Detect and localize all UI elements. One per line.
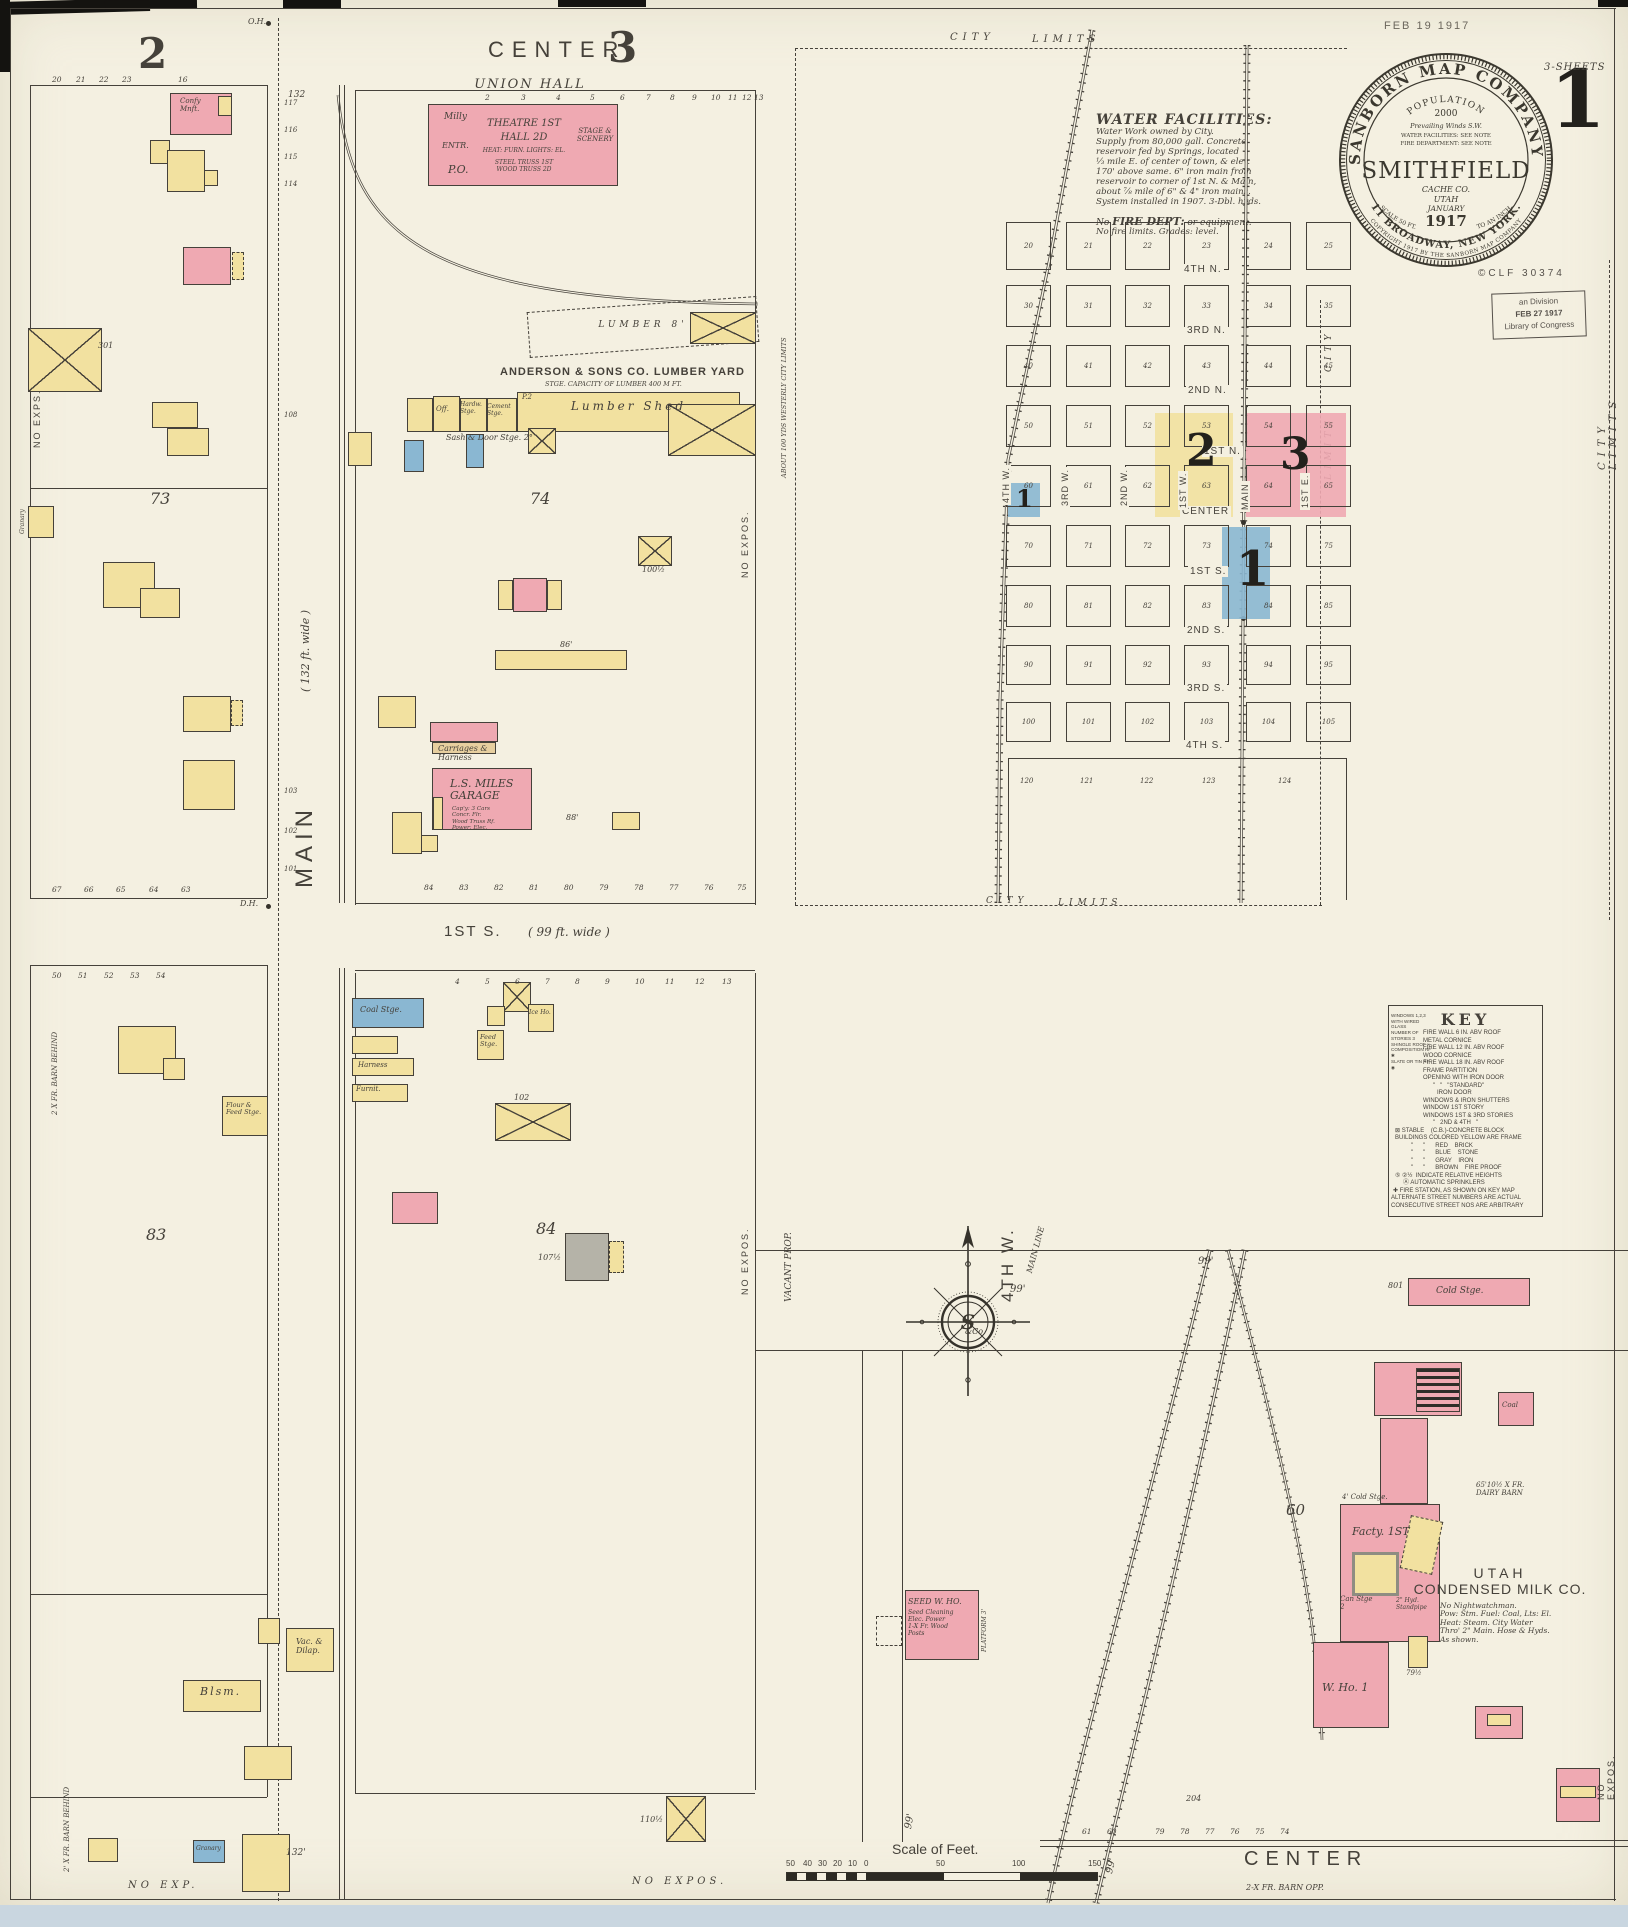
map-label: 99' [1198, 1256, 1213, 1267]
lot-number: 16 [178, 76, 188, 84]
key-legend-mini-line: NUMBER OF STORIES 3 [1391, 1030, 1433, 1041]
map-line [267, 965, 268, 1797]
map-label: 801 [1388, 1282, 1403, 1291]
map-label: 114 [284, 181, 297, 189]
map-label: LIMITS [1058, 898, 1122, 908]
map-line [10, 8, 11, 1899]
map-label: 108 [284, 412, 297, 420]
building [1352, 1552, 1399, 1596]
keymap-block: 103 [1184, 702, 1229, 742]
map-label: 204 [1186, 1795, 1201, 1804]
building [392, 812, 422, 854]
keymap-street-label: 4TH W. [1001, 465, 1011, 505]
scale-bar-number: 0 [864, 1860, 868, 1869]
lot-number: 54 [156, 972, 166, 980]
lot-number: 9 [692, 94, 697, 102]
seal-water-note: WATER FACILITIES: SEE NOTE [1401, 133, 1491, 139]
lot-number: 77 [669, 884, 679, 892]
torn-paper-edge [558, 0, 646, 7]
map-label: ABOUT 100 YDS WESTERLY CITY LIMITS [781, 337, 788, 478]
map-label: O.H. [248, 18, 266, 27]
map-line [344, 968, 345, 1899]
keymap-street-label: 2ND W. [1119, 467, 1129, 508]
lot-number: 76 [1230, 1828, 1240, 1836]
building [258, 1618, 280, 1644]
keymap-block: 75 [1306, 525, 1351, 567]
keymap-block: 80 [1006, 585, 1051, 627]
lot-number: 78 [634, 884, 644, 892]
map-label: NO EXPOS. [632, 1876, 727, 1887]
map-label: 73 [150, 490, 170, 508]
map-label: D.H. [240, 900, 258, 909]
map-line [339, 968, 340, 1899]
keymap-block: 40 [1006, 345, 1051, 387]
scale-bar-cell [1021, 1873, 1097, 1880]
key-legend-line: ⑤ ②½ INDICATE RELATIVE HEIGHTS [1395, 1173, 1502, 1179]
building [547, 580, 562, 610]
lot-number: 82 [494, 884, 504, 892]
map-line [30, 898, 267, 899]
lot-number: 7 [646, 94, 651, 102]
building [433, 396, 460, 432]
lot-number: 78 [1180, 1828, 1190, 1836]
map-label: THEATRE 1ST [482, 118, 566, 129]
keymap-block-number: 120 [1020, 778, 1033, 786]
keymap-block: 105 [1306, 702, 1351, 742]
keymap-block: 22 [1125, 222, 1170, 270]
keymap-block: 104 [1246, 702, 1291, 742]
keymap-block-number: 124 [1278, 778, 1291, 786]
lot-number: 8 [670, 94, 675, 102]
lot-number: 12 [695, 978, 705, 986]
map-label: NO EXP. [128, 1880, 198, 1891]
lot-number: 8 [575, 978, 580, 986]
scale-bar-cell [807, 1873, 817, 1880]
keymap-block: 23 [1184, 222, 1229, 270]
map-label: Seed Cleaning Elec. Power 1-X Fr. Wood P… [908, 1610, 953, 1638]
lot-number: 3 [521, 94, 526, 102]
key-legend-mini-line: COMPOSITION RF ✱ [1391, 1047, 1433, 1058]
keymap-block: 55 [1306, 405, 1351, 447]
scale-bar-cell [787, 1873, 797, 1880]
map-label: Cement Stge. [487, 404, 511, 417]
building [244, 1746, 292, 1780]
map-line-dashed [795, 48, 796, 905]
map-label: No Nightwatchman. Pow: Stm. Fuel: Coal, … [1440, 1602, 1551, 1644]
map-label: LUMBER 8' [528, 320, 758, 330]
key-legend-line: FIRE WALL 6 IN. ABV ROOF [1423, 1030, 1501, 1036]
map-line [755, 1250, 1628, 1251]
map-label: ( 132 ft. wide ) [300, 610, 312, 692]
map-line [30, 965, 267, 966]
lot-number: 10 [711, 94, 721, 102]
lot-number: 21 [76, 76, 86, 84]
map-label: CENTER [488, 38, 626, 63]
scale-bar-cell [827, 1873, 837, 1880]
water-notes-title: WATER FACILITIES: [1096, 112, 1316, 128]
building [666, 1796, 706, 1842]
lot-number: 79 [1155, 1828, 1165, 1836]
key-legend-line: " " RED BRICK [1411, 1143, 1473, 1149]
building [565, 1233, 609, 1281]
map-label: NO EXPOS. [740, 510, 750, 578]
building [152, 402, 198, 428]
lot-number: 10 [635, 978, 645, 986]
map-label: FEB 19 1917 [1384, 20, 1470, 32]
scale-bar-cell [837, 1873, 847, 1880]
map-label: Sash & Door Stge. 2° [446, 434, 533, 443]
keymap-block: 91 [1066, 645, 1111, 685]
keymap-street-label: 4TH N. [1182, 264, 1224, 275]
map-label: STGE. CAPACITY OF LUMBER 400 M FT. [545, 381, 682, 388]
lot-number: 22 [99, 76, 109, 84]
map-line [755, 90, 756, 905]
map-label: 103 [284, 788, 297, 796]
key-legend-line: Ⓐ AUTOMATIC SPRINKLERS [1403, 1180, 1485, 1186]
scale-bar-cell [847, 1873, 857, 1880]
torn-paper-edge [1598, 0, 1628, 7]
map-label: Blsm. [200, 1686, 241, 1698]
map-label: 3-SHEETS [1544, 62, 1605, 73]
lot-number: 81 [529, 884, 539, 892]
keymap-block: 83 [1184, 585, 1229, 627]
map-line [10, 1899, 1616, 1900]
map-label: 2 X FR. BARN BEHIND [52, 1032, 60, 1115]
map-label: CITY [950, 32, 995, 43]
lot-number: 51 [78, 972, 88, 980]
keymap-block: 21 [1066, 222, 1111, 270]
keymap-block: 20 [1006, 222, 1051, 270]
map-label: Flour & Feed Stge. [226, 1102, 261, 1117]
keymap-block: 61 [1066, 465, 1111, 507]
map-label: 2' X FR. BARN BEHIND [64, 1787, 72, 1872]
building [183, 696, 231, 732]
lot-number: 74 [1280, 1828, 1290, 1836]
map-label: 99' [1104, 1857, 1119, 1875]
map-label: Cold Stge. [1436, 1286, 1484, 1296]
building [495, 1103, 571, 1141]
building [167, 150, 205, 192]
map-line [344, 85, 345, 903]
map-line [30, 488, 267, 489]
map-line-dashed [1609, 260, 1610, 920]
map-label: 301 [98, 342, 113, 351]
keymap-block: 32 [1125, 285, 1170, 327]
map-line [1040, 1840, 1628, 1841]
building [163, 1058, 185, 1080]
map-label: Facty. 1ST [1352, 1526, 1410, 1538]
keymap-block: 73 [1184, 525, 1229, 567]
water-facilities-notes: WATER FACILITIES: Water Work owned by Ci… [1096, 112, 1316, 238]
map-label: 2-X FR. BARN OPP. [1246, 1884, 1324, 1893]
building [232, 252, 244, 280]
key-legend-line: " " GRAY IRON [1411, 1158, 1473, 1164]
keymap-block: 93 [1184, 645, 1229, 685]
map-label: Harness [358, 1062, 387, 1070]
keymap-block: 100 [1006, 702, 1051, 742]
building [487, 1006, 505, 1026]
map-line [755, 973, 756, 1790]
map-label: UNION HALL [470, 78, 590, 93]
lot-number: 13 [722, 978, 732, 986]
scale-bar-number: 10 [848, 1860, 857, 1869]
lot-number: 6 [620, 94, 625, 102]
keymap-block: 82 [1125, 585, 1170, 627]
building [433, 797, 443, 830]
map-label: 107½ [538, 1254, 561, 1263]
lot-number: 77 [1205, 1828, 1215, 1836]
map-line [355, 970, 755, 971]
building [378, 696, 416, 728]
library-of-congress-stamp: an Division FEB 27 1917 Library of Congr… [1491, 290, 1587, 339]
keymap-block: 81 [1066, 585, 1111, 627]
map-label: L.S. MILES GARAGE [450, 778, 513, 803]
lot-number: 23 [122, 76, 132, 84]
lot-number: 5 [590, 94, 595, 102]
keymap-street-label: 3RD W. [1060, 467, 1070, 508]
lot-number: 11 [728, 94, 738, 102]
seal-population: 2000 [1435, 109, 1458, 119]
keymap-block: 94 [1246, 645, 1291, 685]
scale-bar-number: 50 [786, 1860, 795, 1869]
keymap-block: 95 [1306, 645, 1351, 685]
keymap-block: 44 [1246, 345, 1291, 387]
building [421, 835, 438, 852]
seal-county: CACHE CO. [1422, 185, 1470, 194]
map-label: 4' Cold Stge. [1342, 1494, 1388, 1502]
map-label: CENTER [1244, 1848, 1368, 1870]
map-label: 2" Hyd. Standpipe [1396, 1598, 1427, 1611]
lot-number: 66 [84, 886, 94, 894]
lot-number: 67 [52, 886, 62, 894]
building [430, 722, 498, 742]
building [183, 760, 235, 810]
sanborn-seal: SANBORN MAP COMPANY. POPULATION 2000 Pre… [1336, 50, 1556, 270]
scale-bar-number: 100 [1012, 1860, 1025, 1869]
map-line [30, 85, 31, 898]
water-notes-body: Water Work owned by City.Supply from 80,… [1096, 128, 1316, 208]
lot-number: 76 [704, 884, 714, 892]
keymap-block: 51 [1066, 405, 1111, 447]
lot-number: 6 [515, 978, 520, 986]
map-line [339, 85, 340, 903]
map-label: STAGE & SCENERY [574, 128, 616, 144]
key-legend-line: CONSECUTIVE STREET NOS ARE ARBITRARY [1391, 1203, 1523, 1209]
map-label: 101 [284, 866, 297, 874]
keymap-block: 50 [1006, 405, 1051, 447]
key-legend-line: FIRE WALL 12 IN. ABV ROOF [1423, 1045, 1504, 1051]
keymap-block-number: 123 [1202, 778, 1215, 786]
map-label: CONDENSED MILK CO. [1410, 1582, 1590, 1598]
building [1560, 1786, 1596, 1798]
map-label: LIMITS [1032, 34, 1100, 45]
map-label: Feed Stge. [480, 1034, 497, 1049]
map-dot [266, 21, 271, 26]
lot-number: 83 [459, 884, 469, 892]
building [495, 650, 627, 670]
map-line [902, 1350, 903, 1842]
lot-number: 79 [599, 884, 609, 892]
key-legend-line: IRON DOOR [1437, 1090, 1472, 1096]
lot-number: 75 [737, 884, 747, 892]
map-label: ©CLF 30374 [1478, 268, 1565, 279]
building [638, 536, 672, 566]
keymap-block: 30 [1006, 285, 1051, 327]
keymap-block: 42 [1125, 345, 1170, 387]
key-legend-line: " " BROWN FIRE PROOF [1411, 1165, 1502, 1171]
lot-number: 2 [485, 94, 490, 102]
keymap-block: 41 [1066, 345, 1111, 387]
key-legend-line: WINDOWS & IRON SHUTTERS [1423, 1098, 1510, 1104]
building [513, 578, 547, 612]
key-legend-line: ALTERNATE STREET NUMBERS ARE ACTUAL [1391, 1195, 1521, 1201]
map-line [1008, 758, 1346, 759]
map-label: 60 [1286, 1502, 1305, 1519]
building [1487, 1714, 1511, 1726]
scale-bar-title: Scale of Feet. [892, 1842, 978, 1858]
map-label: Hardw. Stge. [460, 402, 482, 415]
map-label: 84 [536, 1220, 556, 1238]
keymap-block: 72 [1125, 525, 1170, 567]
key-legend-line: WINDOW 1ST STORY [1423, 1105, 1484, 1111]
keymap-block: 45 [1306, 345, 1351, 387]
map-label: 99' [903, 1813, 917, 1830]
building [1408, 1636, 1428, 1668]
map-line [755, 1350, 1628, 1351]
map-line [1040, 1846, 1628, 1847]
keymap-block: 43 [1184, 345, 1229, 387]
water-note-line: System installed in 1907. 3-Dbl. hyds. [1096, 198, 1316, 208]
keymap-block: 34 [1246, 285, 1291, 327]
map-label: Ice Ho. [529, 1010, 551, 1017]
map-label: 110½ [640, 1816, 663, 1825]
keymap-block-number: 121 [1080, 778, 1093, 786]
map-label: 1ST S. [444, 924, 502, 941]
map-label: ENTR. [442, 142, 469, 151]
lot-number: 4 [455, 978, 460, 986]
seal-state: UTAH [1434, 195, 1459, 204]
key-legend-line: BUILDINGS COLORED YELLOW ARE FRAME [1395, 1135, 1522, 1141]
building [1416, 1368, 1460, 1412]
map-label: UTAH [1420, 1566, 1580, 1582]
map-label: 132' [286, 1848, 306, 1858]
keymap-block: 70 [1006, 525, 1051, 567]
map-label: 102 [514, 1094, 529, 1103]
map-label: STEEL TRUSS 1ST WOOD TRUSS 2D [482, 160, 566, 173]
building [231, 700, 243, 726]
map-label: NO EXPOS. [1596, 1755, 1616, 1801]
map-label: Cap'y: 3 Cars Concr. Flr. Wood Truss Rf.… [452, 806, 495, 831]
lot-number: 7 [545, 978, 550, 986]
map-line [1346, 758, 1347, 900]
key-legend-mini-line: SLATE OR TIN RF ◉ [1391, 1059, 1433, 1070]
map-label: Lumber Shed [517, 400, 740, 413]
map-line [30, 85, 267, 86]
building [183, 247, 231, 285]
keymap-block: 35 [1306, 285, 1351, 327]
map-label: 74 [530, 490, 550, 508]
map-label: 116 [284, 127, 297, 135]
map-line [10, 8, 1616, 9]
key-legend-line: ✚ FIRE STATION, AS SHOWN ON KEY MAP [1393, 1188, 1515, 1194]
scale-bar-cell [944, 1873, 1021, 1880]
map-label: Vac. & Dilap. [296, 1638, 323, 1656]
torn-paper-edge [283, 0, 341, 8]
keymap-street-label: MAIN [1240, 482, 1250, 513]
torn-paper-edge [0, 0, 10, 72]
map-label: Granary [20, 509, 27, 534]
keymap-block: 90 [1006, 645, 1051, 685]
scale-bar-number: 150 [1088, 1860, 1101, 1869]
scale-bar-number: 20 [833, 1860, 842, 1869]
map-stage: an Division FEB 27 1917 Library of Congr… [0, 0, 1628, 1927]
lot-number: 75 [1255, 1828, 1265, 1836]
keymap-street-label: 1ST W. [1178, 471, 1188, 510]
keymap-street-label: 3RD N. [1185, 325, 1228, 336]
map-label: HALL 2D [482, 132, 566, 143]
keymap-sheet-number: 3 [1280, 430, 1311, 479]
scale-bar-number: 30 [818, 1860, 827, 1869]
map-label: 115 [284, 154, 297, 162]
lot-number: 50 [52, 972, 62, 980]
keymap-street-label: 2ND S. [1185, 625, 1227, 636]
keymap-block: 33 [1184, 285, 1229, 327]
map-label: 86' [560, 641, 572, 650]
building [140, 588, 180, 618]
seal-winds: Prevailing Winds S.W. [1409, 122, 1482, 130]
keymap-sheet-number: 1 [1236, 543, 1269, 597]
key-legend-line: WINDOWS 1ST & 3RD STORIES [1423, 1113, 1513, 1119]
lot-number: 80 [564, 884, 574, 892]
keymap-block: 25 [1306, 222, 1351, 270]
lot-number: 52 [104, 972, 114, 980]
scale-bar-number: 40 [803, 1860, 812, 1869]
lot-number: 84 [424, 884, 434, 892]
sanborn-map-sheet: an Division FEB 27 1917 Library of Congr… [0, 0, 1628, 1905]
map-label: ( 99 ft. wide ) [528, 926, 610, 939]
map-label: 79½ [1406, 1670, 1422, 1678]
key-legend-line: FIRE WALL 18 IN. ABV ROOF [1423, 1060, 1504, 1066]
keymap-street-label: 2ND N. [1186, 385, 1229, 396]
map-line [355, 903, 755, 904]
keymap-block: 101 [1066, 702, 1111, 742]
building [167, 428, 209, 456]
keymap-block: 102 [1125, 702, 1170, 742]
building [612, 812, 640, 830]
map-dot [266, 904, 271, 909]
keymap-street-label: 3RD S. [1185, 683, 1227, 694]
map-label: 117 [284, 100, 297, 108]
scale-bar-cell [867, 1873, 944, 1880]
map-label: 83 [146, 1226, 166, 1244]
map-label: CITY LIMITS [1597, 396, 1619, 470]
keymap-block: 71 [1066, 525, 1111, 567]
lot-number: 53 [130, 972, 140, 980]
building [407, 398, 433, 432]
keymap-block: 62 [1125, 465, 1170, 507]
map-label: Granary [196, 1846, 221, 1853]
lot-number: 13 [754, 94, 764, 102]
compass-monogram-co: &Co [965, 1327, 983, 1336]
compass-rose: S &Co [858, 1212, 1078, 1432]
building [88, 1838, 118, 1862]
keymap-block: 92 [1125, 645, 1170, 685]
key-legend-mini-line: WITH WIRED GLASS [1391, 1019, 1433, 1030]
lot-number: 63 [181, 886, 191, 894]
keymap-block: 52 [1125, 405, 1170, 447]
keymap-sheet-number: 2 [1186, 426, 1217, 475]
lot-number: 5 [485, 978, 490, 986]
